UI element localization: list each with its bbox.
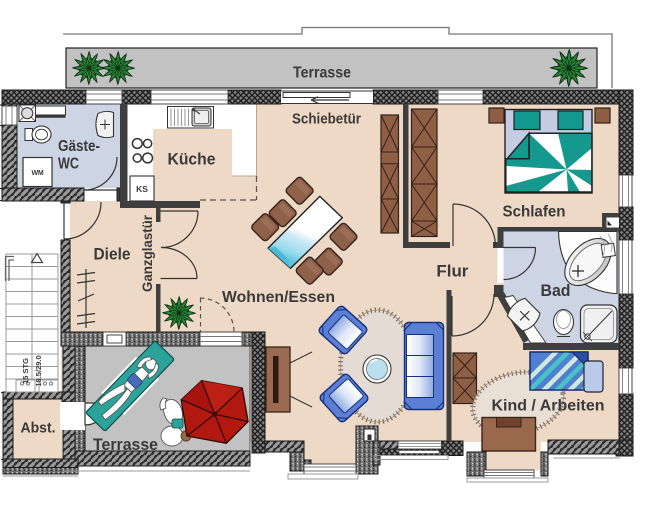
svg-text:Küche: Küche bbox=[168, 151, 216, 169]
svg-text:18.5/29.0: 18.5/29.0 bbox=[34, 355, 43, 386]
svg-text:Terrasse: Terrasse bbox=[93, 436, 158, 454]
svg-text:Schlafen: Schlafen bbox=[503, 203, 566, 220]
svg-text:Schiebetür: Schiebetür bbox=[292, 111, 361, 127]
svg-text:Ganzglastür: Ganzglastür bbox=[139, 214, 155, 292]
svg-text:WC: WC bbox=[58, 156, 79, 173]
svg-text:Flur: Flur bbox=[436, 261, 468, 280]
svg-text:Wohnen/Essen: Wohnen/Essen bbox=[222, 289, 335, 306]
svg-text:KS: KS bbox=[136, 184, 148, 194]
svg-text:WM: WM bbox=[31, 170, 43, 177]
svg-text:Gäste-: Gäste- bbox=[58, 138, 100, 155]
svg-text:Bad: Bad bbox=[541, 281, 571, 300]
svg-text:15 STG: 15 STG bbox=[21, 358, 30, 384]
svg-text:Kind / Arbeiten: Kind / Arbeiten bbox=[492, 398, 605, 415]
svg-text:Diele: Diele bbox=[94, 246, 131, 264]
svg-text:Terrasse: Terrasse bbox=[293, 65, 351, 82]
svg-text:Abst.: Abst. bbox=[21, 420, 56, 437]
